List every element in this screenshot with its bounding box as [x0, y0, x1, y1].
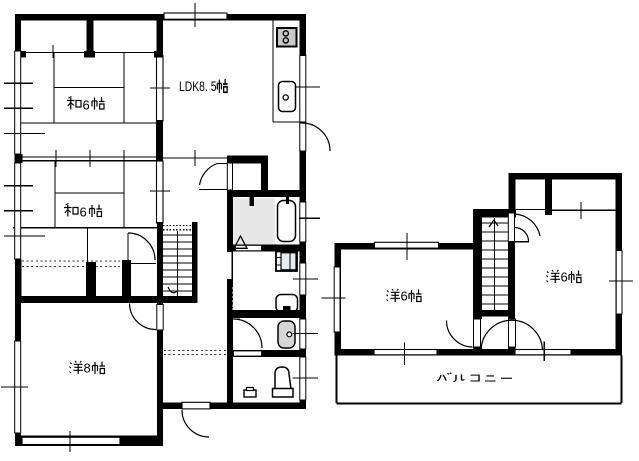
- svg-text:LDK8. 5: LDK8. 5: [179, 79, 217, 94]
- svg-text:6: 6: [80, 205, 87, 220]
- svg-text:6: 6: [561, 270, 568, 285]
- svg-text:6: 6: [83, 98, 90, 113]
- svg-text:8: 8: [84, 361, 91, 376]
- svg-text:6: 6: [401, 289, 408, 304]
